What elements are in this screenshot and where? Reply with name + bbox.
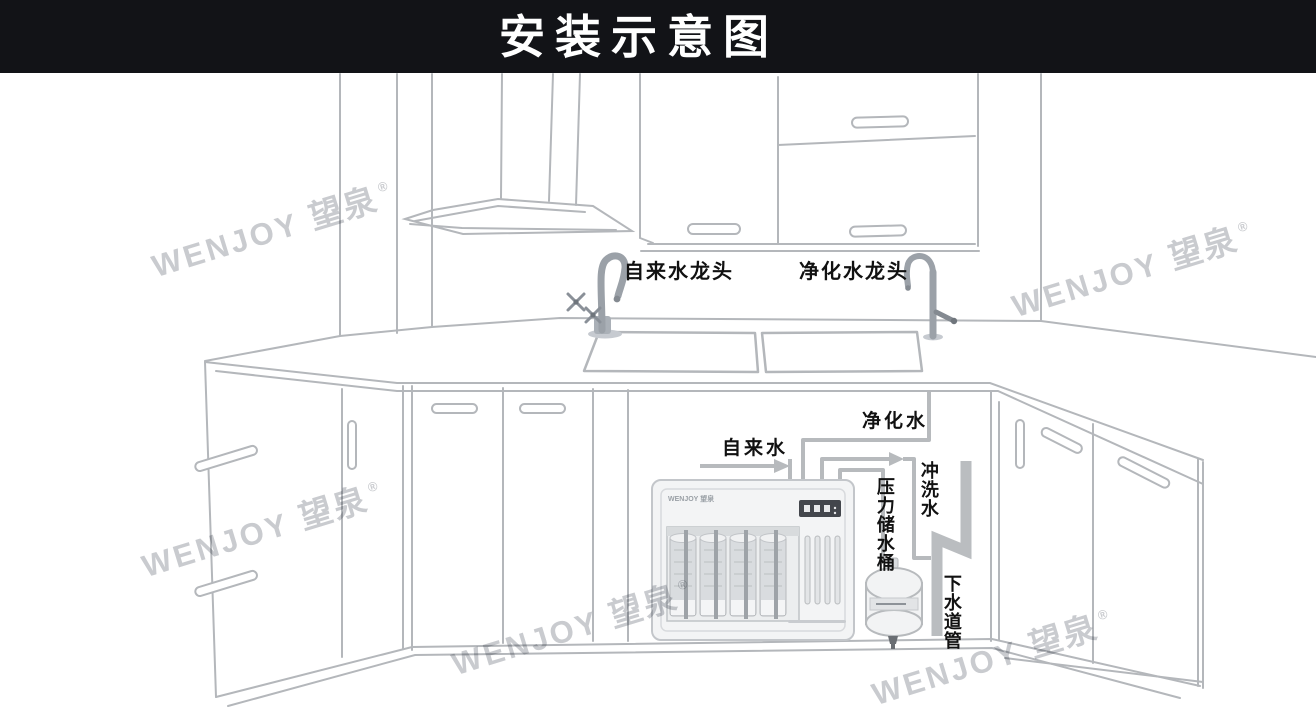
installation-diagram-page: 安装示意图 <box>0 0 1316 728</box>
upper-cabinets <box>640 74 979 251</box>
cabinet-handle <box>520 404 565 413</box>
cabinet-handle <box>432 404 477 413</box>
registered-mark: ® <box>376 178 390 195</box>
cabinet-handle <box>688 224 740 234</box>
label-flush-water: 冲洗水 <box>919 461 938 518</box>
label-purified-faucet: 净化水龙头 <box>799 262 909 283</box>
sink-basin-right <box>762 332 922 372</box>
cabinet-handle <box>1016 420 1024 468</box>
label-purified-water: 净化水 <box>862 412 928 432</box>
tap-faucet <box>568 256 625 339</box>
flow-arrow <box>889 452 904 466</box>
unit-fineprint <box>788 620 846 623</box>
cabinet-handle <box>194 570 258 597</box>
sink-basins <box>584 332 922 372</box>
cabinet-handle <box>194 445 258 472</box>
cabinet-handle <box>1117 456 1171 489</box>
cabinet-handle <box>850 225 906 236</box>
cabinet-handle <box>852 116 908 127</box>
unit-brand-text: WENJOY 望泉 <box>668 494 715 503</box>
flow-arrow <box>774 459 790 473</box>
label-tap-water: 自来水 <box>722 439 788 459</box>
label-pressure-tank: 压力储水桶 <box>875 477 894 572</box>
label-tap-faucet: 自来水龙头 <box>624 262 734 283</box>
range-hood <box>405 74 632 234</box>
purified-faucet <box>905 256 957 340</box>
cabinet-handle <box>348 421 356 469</box>
cabinet-handle <box>1040 426 1083 454</box>
label-drain-pipe: 下水道管 <box>942 574 961 650</box>
